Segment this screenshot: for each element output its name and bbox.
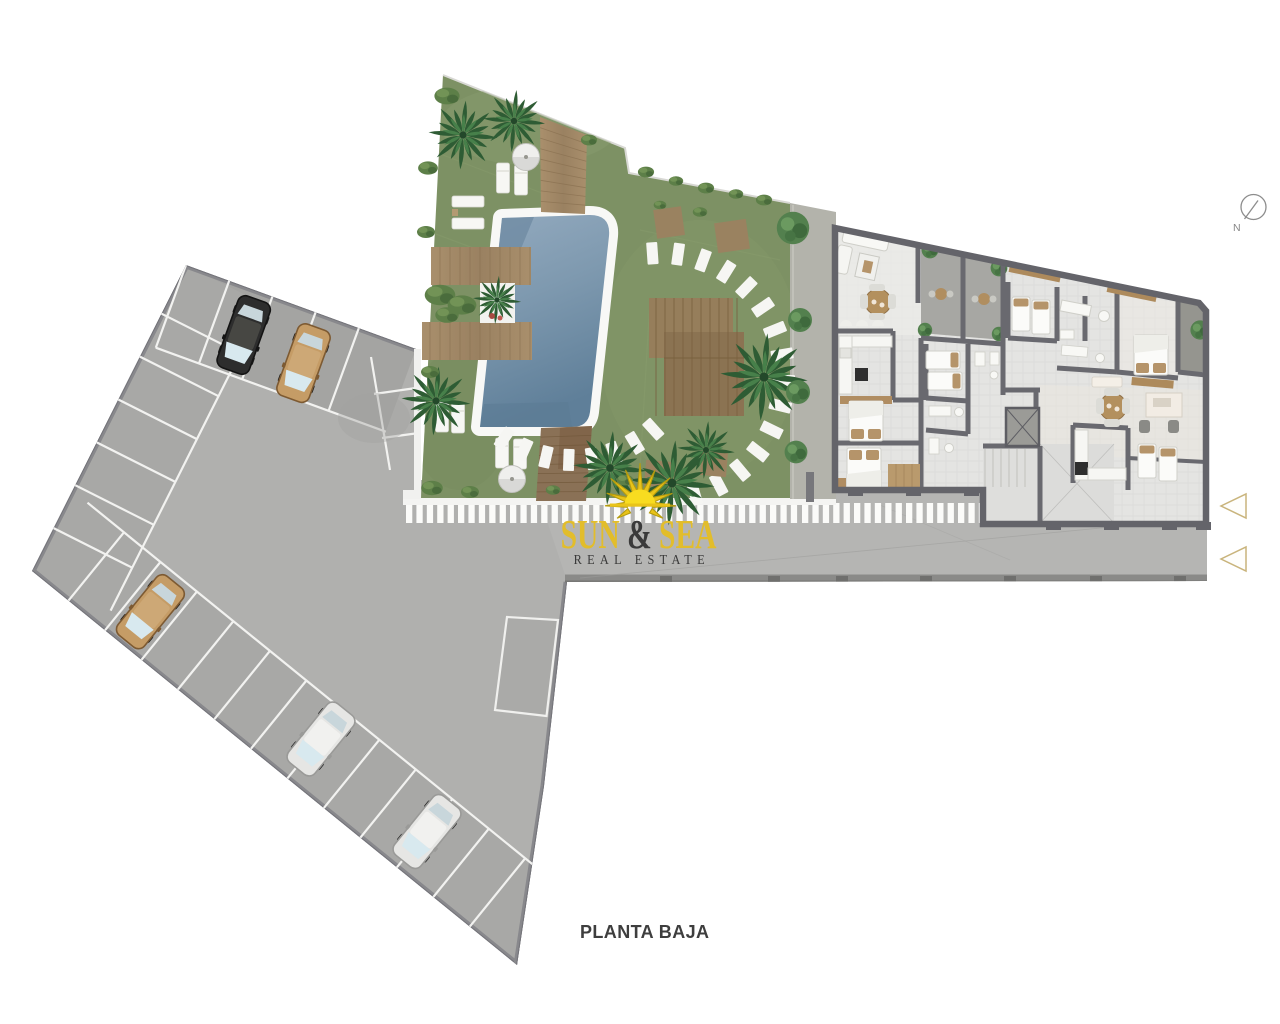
svg-text:PLANTA BAJA: PLANTA BAJA xyxy=(580,922,709,942)
svg-text:REAL ESTATE: REAL ESTATE xyxy=(574,551,710,567)
svg-text:N: N xyxy=(1233,222,1241,234)
